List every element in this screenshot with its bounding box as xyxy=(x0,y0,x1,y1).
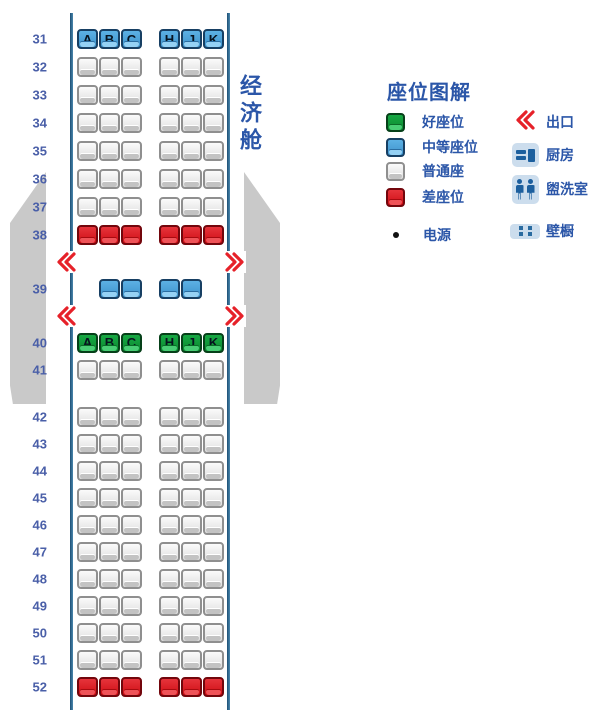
seat-50C[interactable] xyxy=(121,623,142,643)
seat-group-left xyxy=(77,407,142,427)
seat-34H[interactable] xyxy=(159,113,180,133)
seat-45H[interactable] xyxy=(159,488,180,508)
seat-good-icon xyxy=(386,113,405,132)
seat-normal-icon xyxy=(386,162,405,181)
row-number: 32 xyxy=(0,60,47,75)
legend-facility-lavatory: 盥洗室 xyxy=(510,176,588,202)
seat-row-51: 51 xyxy=(0,646,300,673)
seat-49H[interactable] xyxy=(159,596,180,616)
cabin-class-label: 经济舱 xyxy=(233,74,265,155)
seat-39C[interactable] xyxy=(121,279,142,299)
seat-42H[interactable] xyxy=(159,407,180,427)
seat-43B[interactable] xyxy=(99,434,120,454)
exit-row xyxy=(0,249,300,275)
legend-label: 普通座 xyxy=(422,161,464,181)
seat-41K[interactable] xyxy=(203,360,224,380)
seat-43J[interactable] xyxy=(181,434,202,454)
seat-47J[interactable] xyxy=(181,542,202,562)
seat-47B[interactable] xyxy=(99,542,120,562)
closet-box xyxy=(528,232,532,236)
seat-group-right xyxy=(159,113,224,133)
seat-group-left xyxy=(77,461,142,481)
seat-48H[interactable] xyxy=(159,569,180,589)
seat-33J[interactable] xyxy=(181,85,202,105)
seat-51H[interactable] xyxy=(159,650,180,670)
seat-38C[interactable] xyxy=(121,225,142,245)
row-number: 40 xyxy=(0,335,47,350)
seat-52A[interactable] xyxy=(77,677,98,697)
seat-group-right xyxy=(159,542,224,562)
seat-group-right xyxy=(159,596,224,616)
seat-31C[interactable]: C xyxy=(121,29,142,49)
seat-row-41: 41 xyxy=(0,356,300,383)
seat-48A[interactable] xyxy=(77,569,98,589)
seat-38K[interactable] xyxy=(203,225,224,245)
closet-icon xyxy=(510,224,540,239)
legend-label: 差座位 xyxy=(422,187,464,207)
seat-group-left xyxy=(77,623,142,643)
seat-34K[interactable] xyxy=(203,113,224,133)
seat-44B[interactable] xyxy=(99,461,120,481)
seat-32A[interactable] xyxy=(77,57,98,77)
seat-51B[interactable] xyxy=(99,650,120,670)
seat-group-left xyxy=(77,434,142,454)
seat-row-37: 37 xyxy=(0,193,300,221)
row-number: 52 xyxy=(0,679,47,694)
seat-36J[interactable] xyxy=(181,169,202,189)
seat-group-left xyxy=(77,515,142,535)
seat-35J[interactable] xyxy=(181,141,202,161)
legend-title: 座位图解 xyxy=(387,76,471,105)
row-number: 46 xyxy=(0,517,47,532)
seat-45B[interactable] xyxy=(99,488,120,508)
seat-42B[interactable] xyxy=(99,407,120,427)
seat-37H[interactable] xyxy=(159,197,180,217)
seat-group-right xyxy=(159,569,224,589)
seat-44K[interactable] xyxy=(203,461,224,481)
seat-49A[interactable] xyxy=(77,596,98,616)
seat-31K[interactable]: K xyxy=(203,29,224,49)
row-number: 41 xyxy=(0,362,47,377)
seat-group-right xyxy=(159,85,224,105)
seat-50K[interactable] xyxy=(203,623,224,643)
seat-37A[interactable] xyxy=(77,197,98,217)
row-number: 38 xyxy=(0,228,47,243)
seat-31J[interactable]: J xyxy=(181,29,202,49)
seat-43K[interactable] xyxy=(203,434,224,454)
seat-37C[interactable] xyxy=(121,197,142,217)
seat-39B[interactable] xyxy=(99,279,120,299)
exit-right-icon xyxy=(224,305,246,327)
seat-52B[interactable] xyxy=(99,677,120,697)
seat-46J[interactable] xyxy=(181,515,202,535)
galley-tray xyxy=(516,150,526,154)
seat-52J[interactable] xyxy=(181,677,202,697)
person-figure xyxy=(516,179,524,200)
seat-43C[interactable] xyxy=(121,434,142,454)
facility-icon-slot xyxy=(510,175,540,204)
seat-49C[interactable] xyxy=(121,596,142,616)
seat-51J[interactable] xyxy=(181,650,202,670)
seat-34J[interactable] xyxy=(181,113,202,133)
seat-38J[interactable] xyxy=(181,225,202,245)
facility-icon-slot xyxy=(510,110,540,135)
seat-46C[interactable] xyxy=(121,515,142,535)
seat-row-49: 49 xyxy=(0,592,300,619)
seat-31H[interactable]: H xyxy=(159,29,180,49)
legend-seat-type-normal: 普通座 xyxy=(386,158,464,184)
row-number: 39 xyxy=(0,282,47,297)
seat-group-left xyxy=(77,169,142,189)
seat-33H[interactable] xyxy=(159,85,180,105)
seat-43A[interactable] xyxy=(77,434,98,454)
seat-row-31: 31ABCHJK xyxy=(0,25,300,53)
seat-51K[interactable] xyxy=(203,650,224,670)
lavatory-icon xyxy=(512,175,539,204)
seat-42C[interactable] xyxy=(121,407,142,427)
seat-group-right xyxy=(159,57,224,77)
seat-46K[interactable] xyxy=(203,515,224,535)
legend-label: 盥洗室 xyxy=(546,179,588,199)
cabin-gap xyxy=(0,383,300,403)
legend-seat-type-good: 好座位 xyxy=(386,109,464,135)
row-number: 45 xyxy=(0,490,47,505)
seat-group-left xyxy=(77,677,142,697)
seat-group-left xyxy=(77,360,142,380)
row-number: 51 xyxy=(0,652,47,667)
seat-row-38: 38 xyxy=(0,221,300,249)
seat-33A[interactable] xyxy=(77,85,98,105)
seat-49K[interactable] xyxy=(203,596,224,616)
seat-36B[interactable] xyxy=(99,169,120,189)
galley-tray xyxy=(516,156,526,160)
seat-group-left xyxy=(77,488,142,508)
seat-51A[interactable] xyxy=(77,650,98,670)
seat-49B[interactable] xyxy=(99,596,120,616)
seat-42A[interactable] xyxy=(77,407,98,427)
seat-35A[interactable] xyxy=(77,141,98,161)
seat-48B[interactable] xyxy=(99,569,120,589)
legend-power: 电源 xyxy=(386,222,451,248)
seat-group-right xyxy=(159,141,224,161)
seat-36H[interactable] xyxy=(159,169,180,189)
seat-group-right xyxy=(159,169,224,189)
closet-box xyxy=(519,226,523,230)
row-number: 47 xyxy=(0,544,47,559)
seat-group-left: ABC xyxy=(77,333,142,353)
power-icon xyxy=(393,232,399,238)
seat-medium-icon xyxy=(386,138,405,157)
seat-48K[interactable] xyxy=(203,569,224,589)
seat-35H[interactable] xyxy=(159,141,180,161)
legend-seat-type-bad: 差座位 xyxy=(386,184,464,210)
seat-group-right xyxy=(159,360,224,380)
seat-46A[interactable] xyxy=(77,515,98,535)
seat-group-left xyxy=(77,113,142,133)
seat-45C[interactable] xyxy=(121,488,142,508)
seat-group-right xyxy=(159,650,224,670)
seat-51C[interactable] xyxy=(121,650,142,670)
row-number: 42 xyxy=(0,409,47,424)
seat-group-right xyxy=(159,434,224,454)
row-number: 48 xyxy=(0,571,47,586)
seat-group-right xyxy=(159,407,224,427)
legend: 座位图解 好座位中等座位普通座差座位电源出口厨房盥洗室壁橱 xyxy=(386,76,604,286)
seat-47C[interactable] xyxy=(121,542,142,562)
seat-37J[interactable] xyxy=(181,197,202,217)
legend-facility-exit: 出口 xyxy=(510,109,574,135)
seat-36C[interactable] xyxy=(121,169,142,189)
seat-group-right xyxy=(159,461,224,481)
seat-32K[interactable] xyxy=(203,57,224,77)
seat-group-left xyxy=(77,57,142,77)
seat-row-52: 52 xyxy=(0,673,300,700)
person-figure xyxy=(527,179,535,200)
seat-row-45: 45 xyxy=(0,484,300,511)
seat-group-left xyxy=(77,225,142,245)
legend-label: 壁橱 xyxy=(546,221,574,241)
seat-52C[interactable] xyxy=(121,677,142,697)
row-number: 34 xyxy=(0,116,47,131)
seat-34C[interactable] xyxy=(121,113,142,133)
legend-label: 电源 xyxy=(423,225,451,245)
seat-50J[interactable] xyxy=(181,623,202,643)
facility-icon-slot xyxy=(510,224,540,239)
seat-35K[interactable] xyxy=(203,141,224,161)
seat-group-left xyxy=(77,596,142,616)
seat-42J[interactable] xyxy=(181,407,202,427)
seat-40J[interactable]: J xyxy=(181,333,202,353)
seat-40B[interactable]: B xyxy=(99,333,120,353)
legend-label: 中等座位 xyxy=(422,137,478,157)
seat-row-46: 46 xyxy=(0,511,300,538)
seat-row-40: 40ABCHJK xyxy=(0,329,300,356)
seat-40A[interactable]: A xyxy=(77,333,98,353)
seat-32J[interactable] xyxy=(181,57,202,77)
seat-41H[interactable] xyxy=(159,360,180,380)
row-number: 36 xyxy=(0,172,47,187)
row-number: 50 xyxy=(0,625,47,640)
seat-group-right: HJK xyxy=(159,29,224,49)
row-number: 49 xyxy=(0,598,47,613)
seat-39J[interactable] xyxy=(181,279,202,299)
closet-shelf xyxy=(519,226,523,236)
seat-41B[interactable] xyxy=(99,360,120,380)
seat-32H[interactable] xyxy=(159,57,180,77)
seat-34B[interactable] xyxy=(99,113,120,133)
seat-row-44: 44 xyxy=(0,457,300,484)
seat-40C[interactable]: C xyxy=(121,333,142,353)
row-number: 33 xyxy=(0,88,47,103)
seat-52H[interactable] xyxy=(159,677,180,697)
seat-group-right xyxy=(159,225,224,245)
seat-45K[interactable] xyxy=(203,488,224,508)
seat-40H[interactable]: H xyxy=(159,333,180,353)
row-number: 44 xyxy=(0,463,47,478)
seat-40K[interactable]: K xyxy=(203,333,224,353)
galley-icon xyxy=(512,143,539,167)
legend-seat-type-medium: 中等座位 xyxy=(386,134,478,160)
closet-box xyxy=(519,232,523,236)
legend-facility-closet: 壁橱 xyxy=(510,218,574,244)
seat-50A[interactable] xyxy=(77,623,98,643)
exit-row xyxy=(0,303,300,329)
seat-row-39: 39 xyxy=(0,275,300,303)
seat-48C[interactable] xyxy=(121,569,142,589)
seat-group-right xyxy=(159,677,224,697)
seat-row-50: 50 xyxy=(0,619,300,646)
seat-42K[interactable] xyxy=(203,407,224,427)
exit-icon xyxy=(515,110,535,135)
exit-left-icon xyxy=(55,305,77,327)
seat-38B[interactable] xyxy=(99,225,120,245)
seat-41J[interactable] xyxy=(181,360,202,380)
galley-trays xyxy=(516,150,526,160)
seat-31B[interactable]: B xyxy=(99,29,120,49)
seat-44H[interactable] xyxy=(159,461,180,481)
seat-44C[interactable] xyxy=(121,461,142,481)
legend-label: 厨房 xyxy=(546,145,574,165)
closet-box xyxy=(528,226,532,230)
seat-36K[interactable] xyxy=(203,169,224,189)
seat-52K[interactable] xyxy=(203,677,224,697)
seat-46B[interactable] xyxy=(99,515,120,535)
exit-right-icon xyxy=(224,251,246,273)
seat-48J[interactable] xyxy=(181,569,202,589)
seat-row-47: 47 xyxy=(0,538,300,565)
seat-39H[interactable] xyxy=(159,279,180,299)
seat-44J[interactable] xyxy=(181,461,202,481)
seat-45J[interactable] xyxy=(181,488,202,508)
seat-46H[interactable] xyxy=(159,515,180,535)
seat-37B[interactable] xyxy=(99,197,120,217)
seat-group-left xyxy=(77,141,142,161)
closet-shelf xyxy=(528,226,532,236)
seat-44A[interactable] xyxy=(77,461,98,481)
seat-group-left xyxy=(77,569,142,589)
seat-38A[interactable] xyxy=(77,225,98,245)
seat-35C[interactable] xyxy=(121,141,142,161)
seat-32B[interactable] xyxy=(99,57,120,77)
seat-41A[interactable] xyxy=(77,360,98,380)
seat-47A[interactable] xyxy=(77,542,98,562)
seat-49J[interactable] xyxy=(181,596,202,616)
seat-group-left xyxy=(77,279,142,299)
legend-label: 出口 xyxy=(546,112,574,132)
row-number: 37 xyxy=(0,200,47,215)
seat-50H[interactable] xyxy=(159,623,180,643)
seat-group-right xyxy=(159,515,224,535)
row-number: 43 xyxy=(0,436,47,451)
seat-row-43: 43 xyxy=(0,430,300,457)
seat-36A[interactable] xyxy=(77,169,98,189)
seat-group-left: ABC xyxy=(77,29,142,49)
seat-38H[interactable] xyxy=(159,225,180,245)
seat-group-right: HJK xyxy=(159,333,224,353)
seat-35B[interactable] xyxy=(99,141,120,161)
seat-34A[interactable] xyxy=(77,113,98,133)
seat-row-42: 42 xyxy=(0,403,300,430)
row-number: 31 xyxy=(0,32,47,47)
seat-41C[interactable] xyxy=(121,360,142,380)
exit-left-icon xyxy=(55,251,77,273)
seat-group-left xyxy=(77,650,142,670)
seat-group-right xyxy=(159,197,224,217)
seat-33C[interactable] xyxy=(121,85,142,105)
seat-31A[interactable]: A xyxy=(77,29,98,49)
seat-45A[interactable] xyxy=(77,488,98,508)
seat-group-right xyxy=(159,279,224,299)
legend-facility-galley: 厨房 xyxy=(510,142,574,168)
seat-33K[interactable] xyxy=(203,85,224,105)
seat-group-right xyxy=(159,488,224,508)
seat-map-page: 31ABCHJK323334353637383940ABCHJK41424344… xyxy=(0,0,604,718)
seat-group-left xyxy=(77,197,142,217)
row-number: 35 xyxy=(0,144,47,159)
seat-group-left xyxy=(77,85,142,105)
seat-37K[interactable] xyxy=(203,197,224,217)
seat-50B[interactable] xyxy=(99,623,120,643)
seat-row-36: 36 xyxy=(0,165,300,193)
seat-33B[interactable] xyxy=(99,85,120,105)
facility-icon-slot xyxy=(510,143,540,167)
seat-43H[interactable] xyxy=(159,434,180,454)
seat-47K[interactable] xyxy=(203,542,224,562)
seat-group-left xyxy=(77,542,142,562)
seat-32C[interactable] xyxy=(121,57,142,77)
galley-cart xyxy=(528,149,535,162)
seat-bad-icon xyxy=(386,188,405,207)
seat-47H[interactable] xyxy=(159,542,180,562)
seat-row-48: 48 xyxy=(0,565,300,592)
seat-group-right xyxy=(159,623,224,643)
legend-label: 好座位 xyxy=(422,112,464,132)
